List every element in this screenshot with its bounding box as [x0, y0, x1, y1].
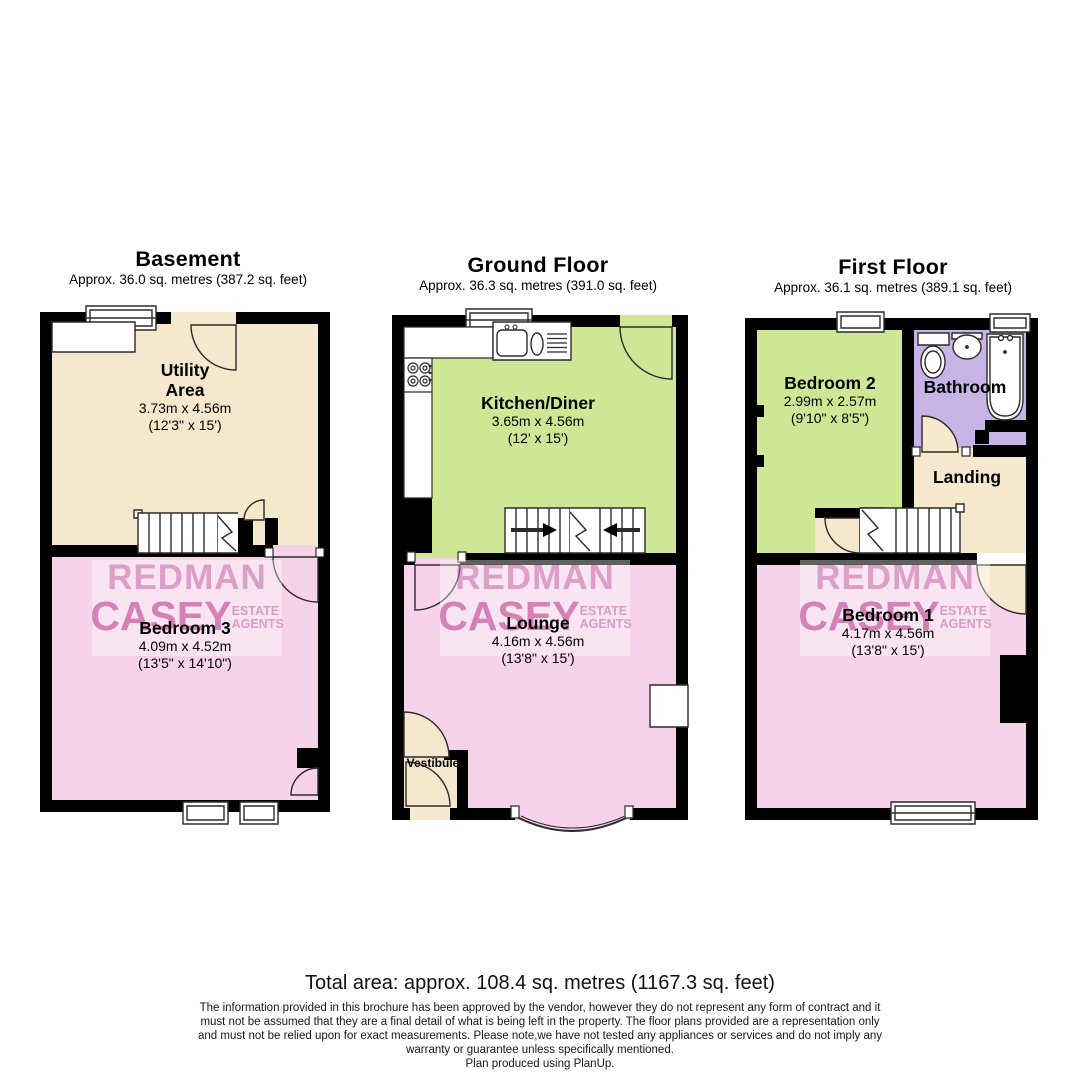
first-stairs — [860, 504, 964, 553]
bay-window — [511, 806, 633, 831]
disclaimer-line: warranty or guarantee unless specificall… — [170, 1043, 910, 1057]
watermark-redman: REDMAN — [92, 560, 282, 596]
watermark-redman: REDMAN — [440, 560, 630, 596]
ground-area-text: Approx. 36.3 sq. metres (391.0 sq. feet) — [360, 278, 716, 293]
bedroom1-label: Bedroom 1 4.17m x 4.56m (13'8" x 15') — [803, 605, 973, 658]
floor-plan-basement: Basement Approx. 36.0 sq. metres (387.2 … — [30, 245, 346, 945]
bath-tap — [1008, 336, 1013, 341]
ground-title: Ground Floor — [380, 253, 696, 278]
planup-credit: Plan produced using PlanUp. — [170, 1057, 910, 1071]
first-area-text: Approx. 36.1 sq. metres (389.1 sq. feet) — [715, 280, 1071, 295]
bedroom2-label: Bedroom 2 2.99m x 2.57m (9'10" x 8'5") — [745, 373, 915, 426]
disclaimer-line: The information provided in this brochur… — [170, 1001, 910, 1015]
basement-stairs — [134, 510, 238, 553]
lounge-label: Lounge 4.16m x 4.56m (13'8" x 15') — [453, 613, 623, 666]
ground-stairs — [505, 508, 645, 553]
kitchen-counter — [404, 327, 493, 358]
utility-area-label: Utility Area 3.73m x 4.56m (12'3" x 15') — [130, 360, 240, 433]
bath-tap — [999, 336, 1004, 341]
floorplan-brochure: Basement Approx. 36.0 sq. metres (387.2 … — [0, 0, 1080, 1080]
utility-worktop — [52, 322, 135, 352]
bathroom-label: Bathroom — [895, 377, 1035, 397]
disclaimer: The information provided in this brochur… — [170, 1001, 910, 1071]
basement-title: Basement — [30, 247, 346, 272]
bedroom3-door-opening — [273, 545, 318, 557]
kitchen-door-opening — [620, 315, 672, 327]
watermark-redman: REDMAN — [800, 560, 990, 596]
disclaimer-line: and must not be relied upon for exact me… — [170, 1029, 910, 1043]
floor-plan-first: First Floor Approx. 36.1 sq. metres (389… — [735, 245, 1051, 945]
toilet-cistern — [918, 333, 949, 345]
total-area-text: Total area: approx. 108.4 sq. metres (11… — [0, 972, 1080, 995]
landing-label: Landing — [902, 467, 1032, 487]
floor-plan-ground: Ground Floor Approx. 36.3 sq. metres (39… — [380, 245, 696, 945]
kitchen-label: Kitchen/Diner 3.65m x 4.56m (12' x 15') — [448, 393, 628, 446]
vestibule-label: Vestibule — [383, 757, 483, 770]
disclaimer-line: must not be assumed that they are a fina… — [170, 1015, 910, 1029]
basement-area-text: Approx. 36.0 sq. metres (387.2 sq. feet) — [10, 272, 366, 287]
front-door-opening — [410, 808, 450, 820]
sink-bowl — [497, 330, 527, 356]
first-title: First Floor — [735, 255, 1051, 280]
sink-second-bowl — [531, 333, 543, 355]
utility-door-opening — [171, 312, 236, 324]
bedroom3-label: Bedroom 3 4.09m x 4.52m (13'5" x 14'10") — [100, 618, 270, 671]
lounge-recess — [650, 685, 688, 727]
